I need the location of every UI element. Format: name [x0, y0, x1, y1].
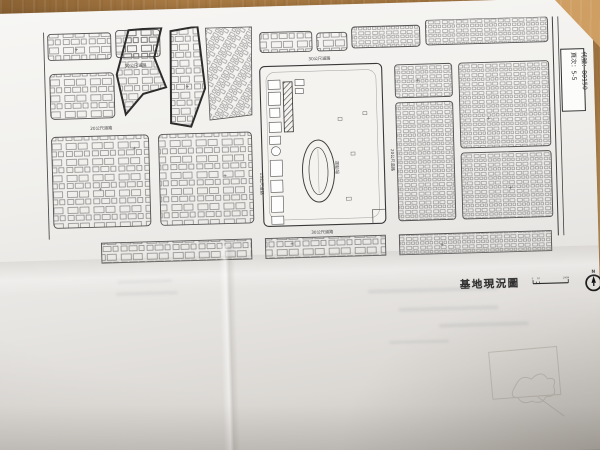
map-title: 基地現況圖 — [460, 275, 520, 292]
site-plan-map: 運動場 30公尺道路 30公尺道路 30公尺道路 20公尺道路 20公尺道路 1… — [35, 15, 596, 265]
scale-bar: 0 10 100M — [530, 273, 570, 290]
code-label: 代號：80150 — [580, 51, 589, 90]
city-block — [51, 135, 151, 229]
road-label: 20公尺道路 — [389, 149, 397, 172]
road-label: 30公尺道路 — [311, 228, 334, 236]
city-block — [101, 239, 251, 263]
city-block — [461, 151, 553, 219]
city-block — [395, 63, 453, 98]
page-label: 頁次：5-5 — [569, 52, 578, 81]
city-block — [425, 17, 548, 45]
city-block — [260, 31, 313, 52]
bleed-through-text — [439, 321, 529, 328]
city-block — [399, 231, 551, 255]
pencil-sketch — [474, 336, 591, 425]
road-label: 15公尺道路 — [258, 173, 266, 196]
north-arrow-icon: N — [581, 264, 600, 297]
bleed-through-text — [398, 305, 498, 312]
bleed-through-text — [389, 339, 449, 344]
city-block — [396, 101, 456, 221]
bleed-through-text — [116, 291, 178, 296]
city-block — [265, 235, 386, 258]
photo-of-site-plan: 運動場 30公尺道路 30公尺道路 30公尺道路 20公尺道路 20公尺道路 1… — [0, 0, 600, 450]
paper-sheet: 運動場 30公尺道路 30公尺道路 30公尺道路 20公尺道路 20公尺道路 1… — [0, 0, 600, 450]
north-label: N — [591, 269, 595, 275]
city-block-diagonal — [205, 27, 254, 120]
scale-tick-0: 0 — [532, 277, 534, 280]
site-boundary-parcel — [168, 26, 206, 127]
city-block — [158, 132, 254, 226]
map-right-border — [552, 16, 558, 235]
scale-tick-10: 10 — [537, 277, 541, 280]
road-label: 20公尺道路 — [90, 124, 113, 132]
hatched-building — [283, 82, 293, 132]
city-block — [50, 73, 115, 120]
map-caption-row: 基地現況圖 0 10 100M N — [459, 263, 600, 301]
project-site: 運動場 — [260, 63, 386, 226]
city-block — [48, 33, 112, 61]
bleed-through-text — [117, 279, 172, 284]
paper-fold-crease-vertical — [219, 245, 242, 450]
road-label: 30公尺道路 — [308, 55, 331, 63]
code-box: 代號：80150 頁次：5-5 — [561, 48, 590, 111]
map-left-border — [44, 33, 50, 240]
city-block — [317, 32, 347, 51]
city-block — [459, 61, 551, 148]
scale-tick-100m: 100M — [563, 276, 570, 279]
city-block — [351, 25, 420, 48]
